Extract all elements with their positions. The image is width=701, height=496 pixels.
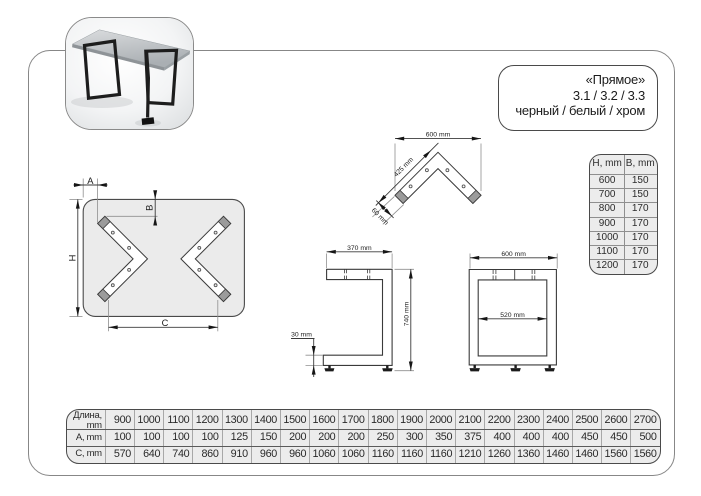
svg-text:H: H [67,255,77,262]
svg-text:30 mm: 30 mm [291,332,312,339]
svg-text:600 mm: 600 mm [426,131,451,138]
svg-text:370 mm: 370 mm [347,245,372,252]
svg-text:A: A [87,176,94,186]
svg-text:425 mm: 425 mm [393,156,416,179]
svg-text:520 mm: 520 mm [500,312,525,319]
svg-text:740 mm: 740 mm [403,301,410,326]
svg-text:600 mm: 600 mm [501,251,526,258]
svg-text:C: C [162,318,169,328]
svg-text:B: B [145,205,155,211]
